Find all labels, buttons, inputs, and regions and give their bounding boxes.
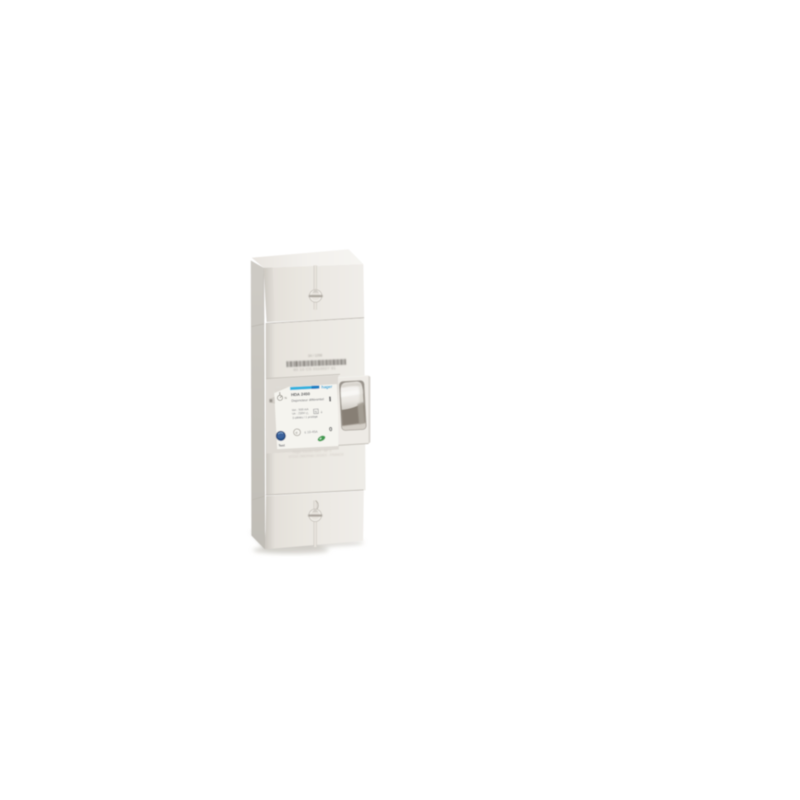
svg-text:≤ 10-45A: ≤ 10-45A: [304, 430, 318, 435]
svg-text:⏚: ⏚: [320, 409, 323, 414]
svg-text:34 / 1298: 34 / 1298: [308, 353, 322, 358]
svg-text:hager: hager: [321, 384, 333, 390]
svg-text:Test: Test: [278, 443, 285, 447]
svg-text:N: N: [315, 410, 317, 414]
svg-text:HDA 2450: HDA 2450: [291, 391, 311, 397]
